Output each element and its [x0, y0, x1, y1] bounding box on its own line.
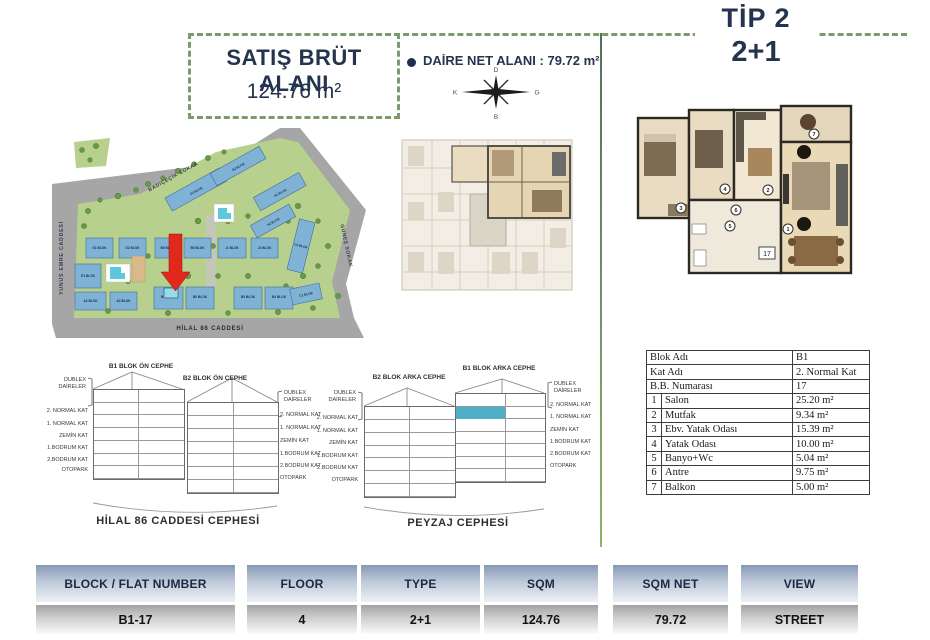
- table-row: 7Balkon5.00 m²: [647, 480, 870, 494]
- compass-south: G: [534, 90, 539, 97]
- summary-value-floor: 4: [247, 605, 357, 634]
- elevation-front: B1 BLOK ÖN CEPHE B2 BLOK ÖN CEPHE DUBLEX…: [38, 363, 318, 535]
- svg-text:6: 6: [734, 208, 737, 214]
- floor-label: DUBLEX: [284, 390, 306, 396]
- summary-header-sqm-net: SQM NET: [613, 565, 728, 602]
- summary-header-type: TYPE: [361, 565, 480, 602]
- type-variant: 2+1: [695, 36, 817, 69]
- unit-detail-table: Blok AdıB1 Kat Adı2. Normal Kat B.B. Num…: [646, 350, 870, 495]
- street-left-label: YUNUS EMRE CADDESİ: [58, 221, 65, 295]
- table-row: 4Yatak Odası10.00 m²: [647, 437, 870, 451]
- elevation-rear: B2 BLOK ARKA CEPHE B1 BLOK ARKA CEPHE DU…: [312, 363, 604, 535]
- building-b2-front: [187, 402, 279, 494]
- floor-label: ZEMİN KAT: [280, 438, 309, 444]
- summary-value-sqm: 124.76: [484, 605, 598, 634]
- table-row: 6Antre9.75 m²: [647, 466, 870, 480]
- type-title: TİP 2: [695, 0, 817, 36]
- summary-header-block-flat: BLOCK / FLAT NUMBER: [36, 565, 235, 602]
- floor-label: 2. NORMAL KAT: [312, 415, 358, 421]
- bullet-icon: [407, 58, 416, 67]
- svg-text:1: 1: [786, 227, 789, 233]
- elevation-title: B2 BLOK ARKA CEPHE: [349, 374, 469, 381]
- table-row: Blok AdıB1: [647, 351, 870, 365]
- map-block-label: A3 BLOK: [117, 299, 132, 303]
- floor-label: 1. NORMAL KAT: [550, 414, 591, 420]
- map-block-label: B4 BLOK: [272, 295, 287, 299]
- brochure-page: SATIŞ BRÜT ALANI 124.76 m² DAİRE NET ALA…: [0, 0, 930, 640]
- floor-label: 2. NORMAL KAT: [550, 402, 591, 408]
- map-block-label: A2 BLOK: [84, 299, 99, 303]
- table-row: Kat Adı2. Normal Kat: [647, 365, 870, 379]
- summary-header-floor: FLOOR: [247, 565, 357, 602]
- svg-text:3: 3: [679, 206, 682, 212]
- gross-area-value: 124.76 m²: [191, 80, 397, 104]
- compass-rose-icon: D G B K: [448, 64, 544, 122]
- building-b2-rear: [364, 406, 456, 498]
- elevation-title: B2 BLOK ÖN CEPHE: [155, 375, 275, 382]
- summary-value-view: STREET: [741, 605, 858, 634]
- summary-value-sqm-net: 79.72: [613, 605, 728, 634]
- floor-label: OTOPARK: [550, 463, 576, 469]
- floor-label: DAİRELER: [312, 397, 356, 403]
- building-b1-front: [93, 389, 185, 480]
- map-block-label: B2 BLOK: [193, 295, 208, 299]
- elevation-caption: HİLAL 86 CADDESİ CEPHESİ: [38, 515, 318, 527]
- floor-label: 1.BODRUM KAT: [312, 453, 358, 459]
- map-block-label: G2 BLOK: [125, 246, 140, 250]
- svg-text:5: 5: [728, 224, 731, 230]
- summary-header-view: VIEW: [741, 565, 858, 602]
- street-bottom-label: HİLAL 86 CADDESİ: [176, 325, 243, 332]
- floor-label: DAİRELER: [38, 384, 86, 390]
- floor-label: 1.BODRUM KAT: [550, 439, 591, 445]
- floor-label: 1.BODRUM KAT: [38, 445, 88, 451]
- floor-label: 2. NORMAL KAT: [38, 408, 88, 414]
- table-row: 2Mutfak9.34 m²: [647, 408, 870, 422]
- floor-label: DUBLEX: [554, 381, 576, 387]
- map-block-label: B3 BLOK: [241, 295, 256, 299]
- floor-label: 2.BODRUM KAT: [312, 465, 358, 471]
- summary-header-sqm: SQM: [484, 565, 598, 602]
- elevation-title: B1 BLOK ARKA CEPHE: [439, 365, 559, 372]
- elevation-caption: PEYZAJ CEPHESİ: [312, 517, 604, 529]
- table-row: 1Salon25.20 m²: [647, 394, 870, 408]
- floor-label: ZEMİN KAT: [550, 427, 579, 433]
- svg-text:7: 7: [812, 132, 815, 138]
- floor-label: 1. NORMAL KAT: [312, 428, 358, 434]
- table-row: B.B. Numarası17: [647, 379, 870, 393]
- floor-label: OTOPARK: [312, 477, 358, 483]
- floor-label: DUBLEX: [38, 377, 86, 383]
- map-block-label: B6 BLOK: [191, 246, 206, 250]
- floor-label: ZEMİN KAT: [38, 433, 88, 439]
- map-block-label: E1 BLOK: [81, 274, 96, 278]
- floor-label: DAİRELER: [284, 397, 312, 403]
- svg-text:2: 2: [766, 188, 769, 194]
- unit-number: 17: [763, 251, 771, 258]
- compass-west: B: [494, 114, 498, 121]
- building-b1-rear: [455, 393, 546, 483]
- gross-area-box: SATIŞ BRÜT ALANI 124.76 m²: [188, 33, 400, 119]
- floor-label: OTOPARK: [38, 467, 88, 473]
- floor-label: ZEMİN KAT: [312, 440, 358, 446]
- highlighted-floor-bar: [456, 407, 505, 420]
- map-block-label: G1 BLOK: [92, 246, 107, 250]
- map-block-label: J2 BLOK: [258, 246, 272, 250]
- top-dashed-line: [394, 33, 907, 36]
- summary-value-type: 2+1: [361, 605, 480, 634]
- floor-label: 1. NORMAL KAT: [38, 421, 88, 427]
- floor-label: 2.BODRUM KAT: [550, 451, 591, 457]
- summary-value-block-flat: B1-17: [36, 605, 235, 634]
- table-row: 3Ebv. Yatak Odası15.39 m²: [647, 422, 870, 436]
- floor-label: DAİRELER: [554, 388, 582, 394]
- unit-floor-plan: 3 4 2 6 5 1 7 17: [632, 104, 869, 291]
- compass-east: D: [494, 67, 499, 74]
- elevation-title: B1 BLOK ÖN CEPHE: [81, 363, 201, 370]
- map-block-label: J1 BLOK: [225, 246, 239, 250]
- floor-label: DUBLEX: [312, 390, 356, 396]
- compass-north: K: [453, 90, 458, 97]
- site-plan-map: D1 BLOK D2 BLOK H1 BLOK H2 BLOK C2 BLOK …: [48, 126, 370, 342]
- floor-plate-plan: [392, 132, 592, 297]
- floor-label: OTOPARK: [280, 475, 306, 481]
- floor-label: 2.BODRUM KAT: [38, 457, 88, 463]
- table-row: 5Banyo+Wc5.04 m²: [647, 451, 870, 465]
